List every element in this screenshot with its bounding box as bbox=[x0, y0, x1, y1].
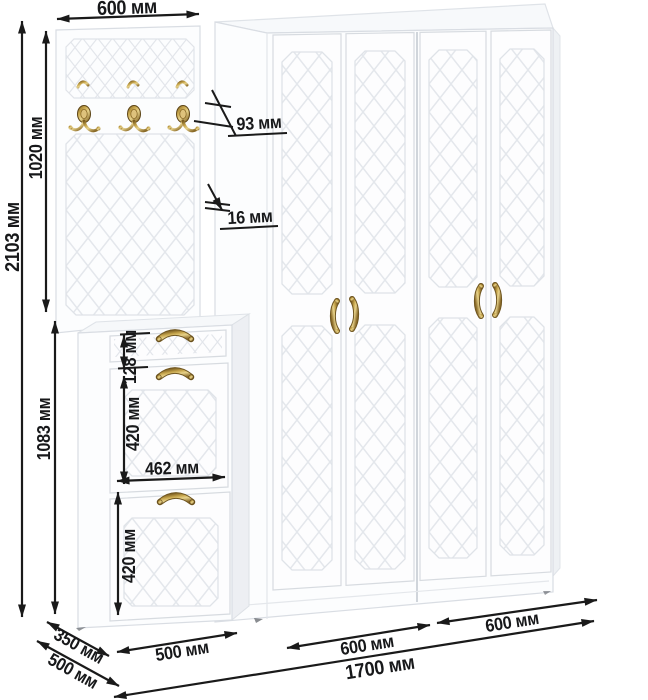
wardrobe bbox=[215, 4, 560, 623]
door-4-lower-panel bbox=[500, 317, 544, 555]
door-2-lower-panel bbox=[355, 325, 405, 569]
hanger-lower-panel bbox=[66, 134, 194, 315]
door-3-lower-panel bbox=[429, 318, 477, 558]
door-3-upper-panel bbox=[429, 50, 477, 287]
cabinet-side bbox=[232, 314, 249, 620]
dim-label-cabinet-height: 1083 мм bbox=[35, 398, 53, 461]
dim-label-panel-width: 600 мм bbox=[97, 0, 158, 19]
dim-label-upper-door-height: 420 мм bbox=[124, 397, 142, 451]
dim-label-hanger-height: 1020 мм bbox=[27, 117, 45, 180]
door-1-upper-panel bbox=[282, 52, 332, 294]
dim-label-lower-door-height: 420 мм bbox=[120, 529, 138, 583]
dim-label-hook-offset: 93 мм bbox=[236, 113, 282, 133]
dim-label-panel-thickness: 16 мм bbox=[227, 207, 273, 227]
door-4-upper-panel bbox=[500, 49, 544, 286]
door-1-lower-panel bbox=[282, 326, 332, 570]
wardrobe-right-edge bbox=[553, 28, 560, 576]
dim-label-door-width: 462 мм bbox=[145, 458, 199, 478]
hanger-panel bbox=[56, 26, 200, 333]
furniture-dimension-diagram: 600 мм 2103 мм 1020 мм 1083 мм 93 мм 16 … bbox=[0, 0, 648, 700]
dim-label-total-height: 2103 мм bbox=[3, 202, 23, 272]
dim-label-drawer-height: 128 мм bbox=[121, 330, 139, 384]
furniture-illustration bbox=[0, 0, 648, 700]
door-2-upper-panel bbox=[355, 51, 405, 293]
